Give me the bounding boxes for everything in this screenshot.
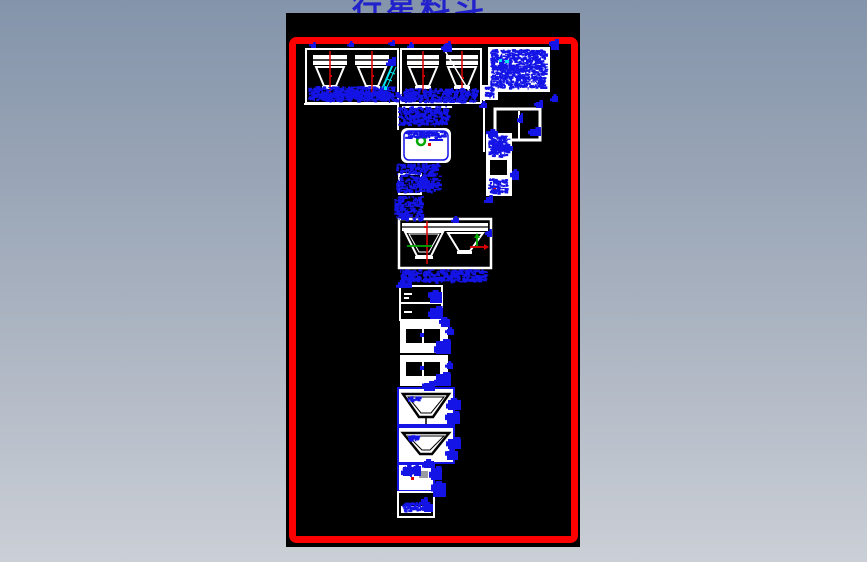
cad-drawing (0, 0, 867, 562)
funnel-detail-lower (398, 427, 454, 463)
desktop-background: 行星料斗 (0, 0, 867, 562)
